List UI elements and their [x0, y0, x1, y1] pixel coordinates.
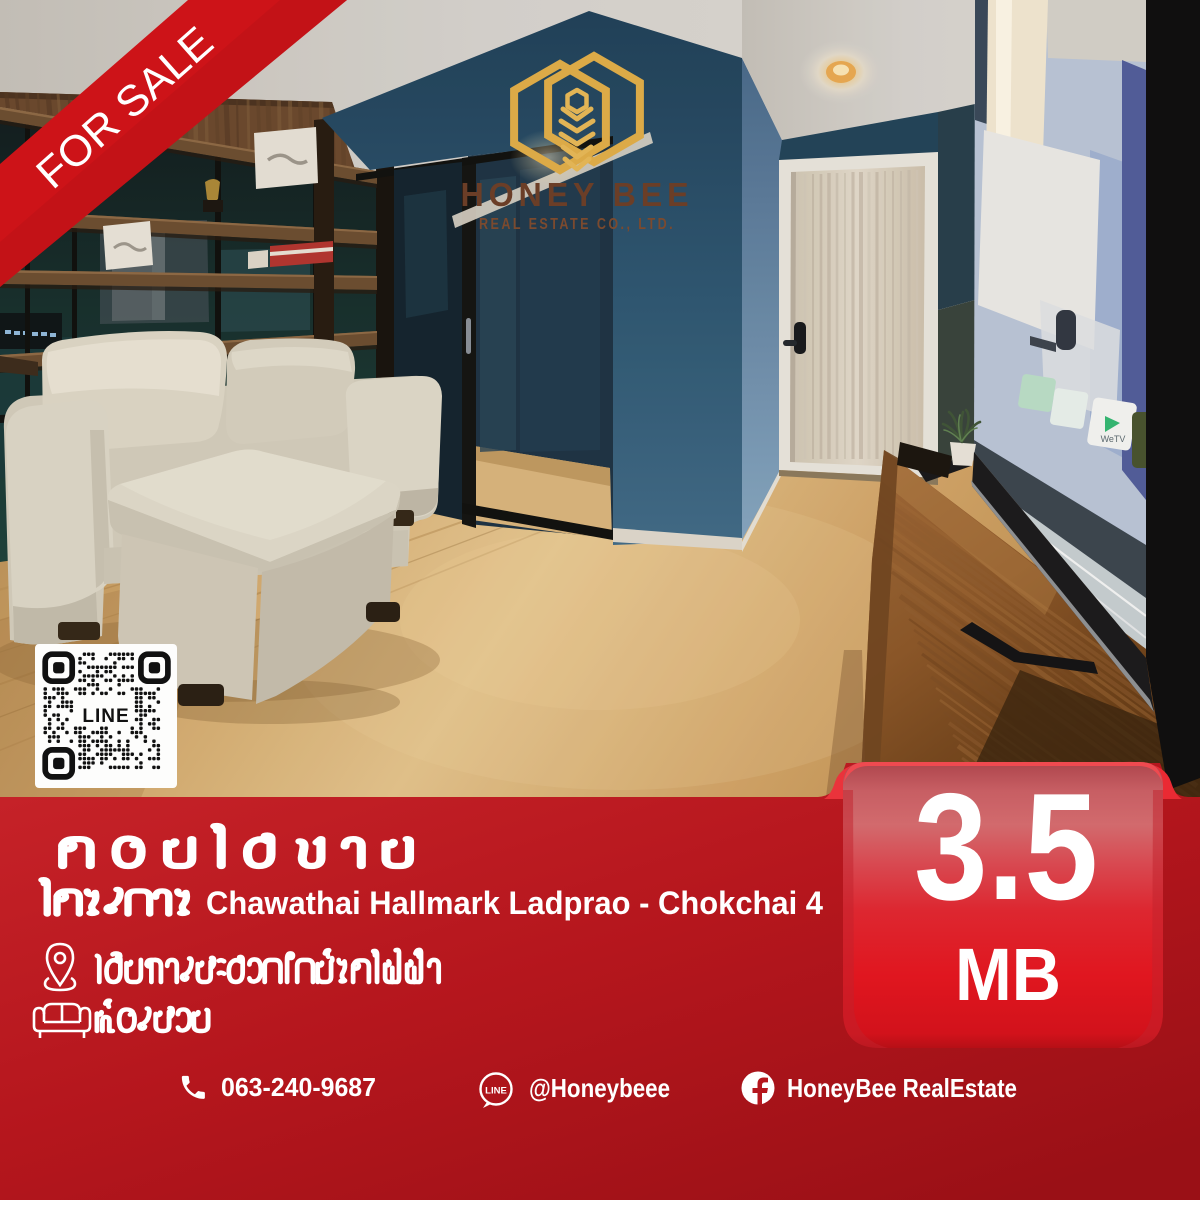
svg-text:LINE: LINE: [82, 706, 129, 727]
svg-text:3.5: 3.5: [914, 762, 1098, 932]
svg-text:HONEY BEE: HONEY BEE: [461, 176, 694, 213]
svg-text:LINE: LINE: [485, 1086, 507, 1097]
svg-text:HoneyBee RealEstate: HoneyBee RealEstate: [787, 1073, 1017, 1103]
svg-text:Chawathai Hallmark Ladprao - C: Chawathai Hallmark Ladprao - Chokchai 4: [206, 885, 823, 921]
svg-text:MB: MB: [955, 933, 1061, 1016]
svg-text:@Honeybeee: @Honeybeee: [529, 1073, 670, 1103]
svg-text:REAL ESTATE CO., LTD.: REAL ESTATE CO., LTD.: [479, 216, 675, 233]
svg-text:063-240-9687: 063-240-9687: [221, 1072, 376, 1102]
